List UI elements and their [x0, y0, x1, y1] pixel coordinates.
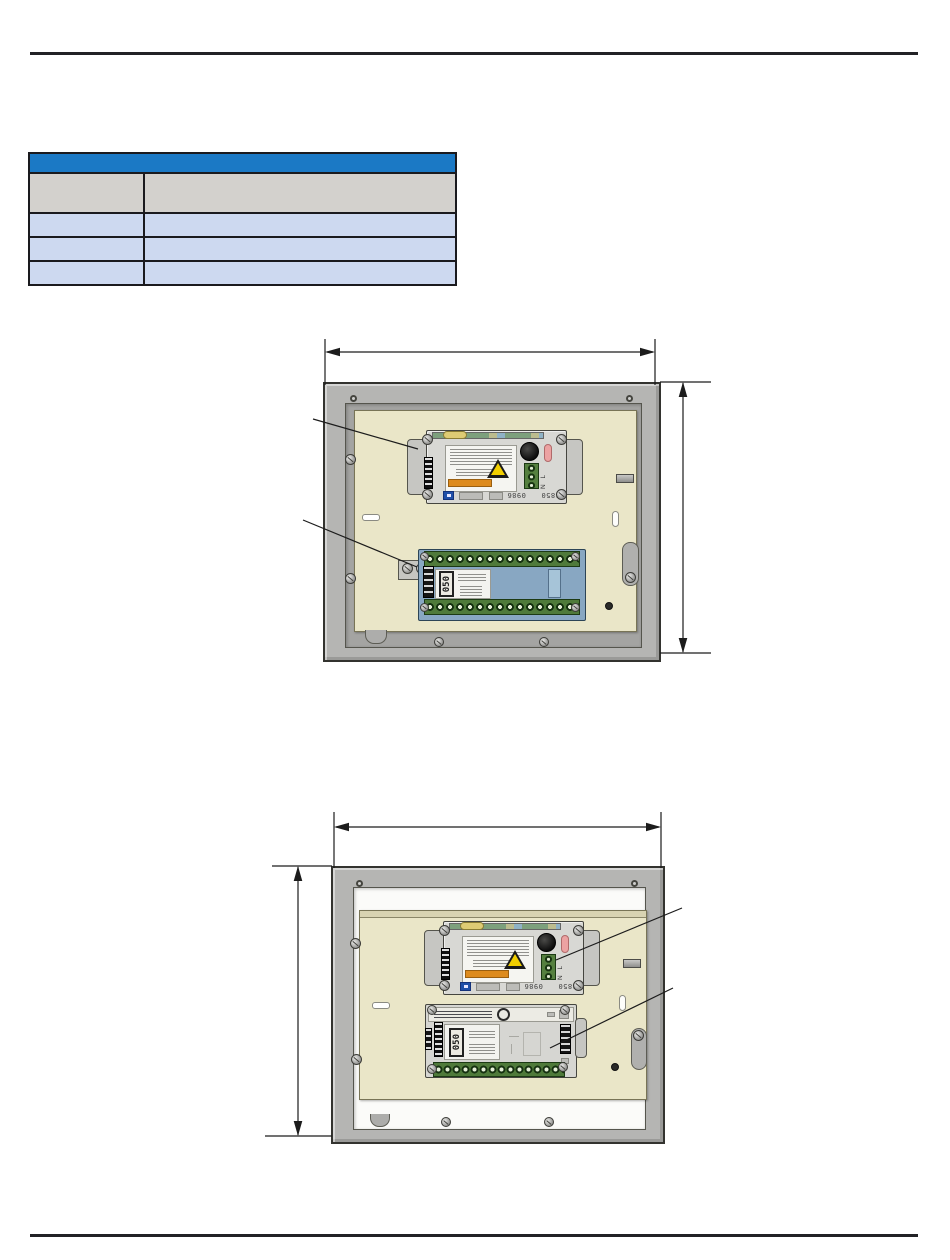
header-rule: [30, 52, 918, 55]
terminal-strip: [424, 599, 580, 615]
label-diagram: [523, 1032, 541, 1056]
table-column-header: [30, 174, 143, 212]
table-cell: [30, 262, 143, 284]
display-digits: 050: [452, 1034, 462, 1050]
label-fine-print: [469, 1031, 495, 1040]
frame-notch: [365, 630, 387, 644]
screw-icon: [556, 489, 567, 500]
label-chip: [476, 983, 500, 991]
screw-icon: [556, 434, 567, 445]
screw-icon: [350, 938, 361, 949]
label-chip: [489, 492, 503, 500]
table-cell: [145, 262, 455, 284]
io-module: 050: [410, 547, 588, 623]
screw-icon: [571, 603, 580, 612]
dip-switch-icon: [434, 1022, 443, 1057]
table-cell: [30, 238, 143, 260]
footer-rule: [30, 1234, 918, 1237]
module-header-strip: [428, 1007, 574, 1022]
warning-triangle-icon: [504, 950, 526, 969]
figure-2-enclosure: N L 0986 3850: [255, 800, 735, 1150]
screw-icon: [427, 1005, 437, 1015]
screw-icon: [611, 1063, 619, 1071]
indicator-capsule: [561, 935, 569, 953]
screw-icon: [625, 572, 636, 583]
screw-icon: [351, 1054, 362, 1065]
module-label: 050: [444, 1024, 500, 1060]
screw-icon: [420, 552, 429, 561]
power-terminal-block: [541, 954, 556, 980]
screw-icon: [439, 980, 450, 991]
figure-1-enclosure: N L 0986 3850: [270, 335, 720, 665]
brand-logo: [497, 1008, 510, 1021]
warning-triangle-fill: [508, 954, 522, 966]
module-code: 0986: [524, 982, 543, 990]
terminal-nl-marking: N L: [557, 954, 565, 980]
warning-triangle-icon: [487, 459, 509, 478]
dip-switch-icon: [423, 566, 434, 598]
screw-icon: [544, 1117, 554, 1127]
table-header-row: [30, 154, 455, 172]
label-chip: [506, 983, 520, 991]
mounting-hole-icon: [631, 880, 638, 887]
plate-slot: [372, 1002, 390, 1009]
connector: [548, 569, 561, 598]
plate-edge: [360, 911, 646, 918]
oval-slot: [619, 995, 626, 1011]
screw-icon: [558, 1062, 568, 1072]
terminal-strip: [424, 551, 580, 567]
table-cell: [145, 214, 455, 236]
spec-table: [28, 152, 457, 286]
screw-icon: [633, 1030, 644, 1041]
address-display: 050: [449, 1028, 464, 1057]
enclosure-frame: N L 0986 3850: [323, 382, 661, 662]
warning-strip: [465, 970, 509, 978]
indicator-capsule: [544, 444, 552, 462]
fuse-capsule: [443, 431, 467, 439]
screw-icon: [439, 925, 450, 936]
module-label: 050: [435, 569, 491, 599]
oval-slot: [612, 511, 619, 527]
screw-icon: [605, 602, 613, 610]
table-cell: [145, 238, 455, 260]
label-fine-print: [460, 586, 482, 596]
power-supply-module: N L 0986 3850: [424, 920, 600, 996]
power-terminal-block: [524, 463, 539, 489]
screw-icon: [573, 925, 584, 936]
screw-icon: [422, 489, 433, 500]
screw-icon: [434, 637, 444, 647]
screw-icon: [441, 1117, 451, 1127]
screw-icon: [571, 552, 580, 561]
stud-icon: [623, 959, 641, 968]
label-fine-print: [469, 1044, 495, 1055]
dip-switch-icon: [441, 948, 450, 980]
terminal-nl-marking: N L: [540, 463, 548, 489]
brand-text: [434, 1011, 492, 1019]
connector: [425, 1028, 432, 1050]
screw-icon: [402, 563, 413, 574]
brand-logo-mark: [447, 494, 451, 497]
screw-icon: [427, 1064, 437, 1074]
screw-icon: [539, 637, 549, 647]
screw-icon: [560, 1005, 570, 1015]
screw-icon: [573, 980, 584, 991]
screw-icon: [345, 454, 356, 465]
label-diagram-line: [511, 1044, 512, 1054]
screw-icon: [420, 603, 429, 612]
fuse-capsule: [460, 922, 484, 930]
document-page: N L 0986 3850: [0, 0, 950, 1260]
label-fine-print: [458, 574, 486, 582]
power-supply-module: N L 0986 3850: [407, 429, 583, 505]
warning-strip: [448, 479, 492, 487]
module-code: 0986: [507, 491, 526, 499]
dip-switch-icon: [424, 457, 433, 489]
plate-slot: [362, 514, 380, 521]
brand-logo: [460, 982, 471, 991]
address-display: 050: [439, 571, 454, 597]
mounting-hole-icon: [356, 880, 363, 887]
connector: [560, 1024, 571, 1054]
mounting-tab: [575, 1018, 587, 1058]
stud-icon: [616, 474, 634, 483]
knob-icon: [520, 442, 539, 461]
label-chip: [459, 492, 483, 500]
label-chip: [547, 1012, 555, 1017]
table-column-header: [145, 174, 455, 212]
io-module: 050: [425, 1004, 597, 1082]
brand-logo-mark: [464, 985, 468, 988]
warning-triangle-fill: [491, 463, 505, 475]
brand-logo: [443, 491, 454, 500]
mounting-hole-icon: [626, 395, 633, 402]
screw-icon: [345, 573, 356, 584]
screw-icon: [422, 434, 433, 445]
mounting-hole-icon: [350, 395, 357, 402]
label-diagram-line: [509, 1036, 519, 1037]
table-cell: [30, 214, 143, 236]
knob-icon: [537, 933, 556, 952]
display-digits: 050: [442, 576, 452, 592]
enclosure-frame: N L 0986 3850: [331, 866, 665, 1144]
terminal-strip: [433, 1062, 565, 1077]
